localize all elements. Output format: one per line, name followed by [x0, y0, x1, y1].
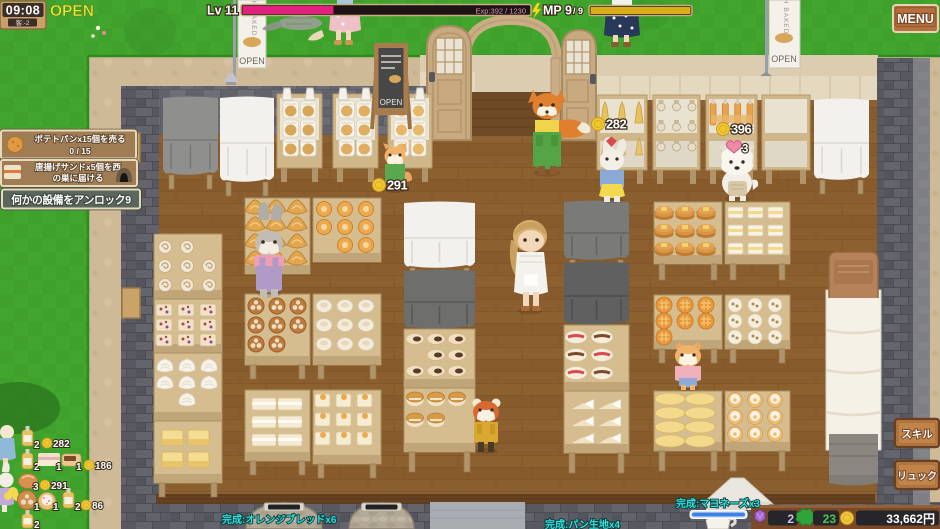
- svg-text:/ 9: / 9: [573, 6, 583, 16]
- svg-text:OPEN: OPEN: [771, 54, 797, 64]
- svg-text:291: 291: [51, 481, 68, 492]
- svg-text:186: 186: [95, 461, 112, 472]
- svg-text:23: 23: [823, 512, 837, 526]
- svg-text:3: 3: [33, 482, 39, 493]
- svg-text:唐揚げサンドx5個を西: 唐揚げサンドx5個を西: [35, 162, 121, 172]
- svg-text:1: 1: [53, 502, 59, 513]
- svg-text:完成:パン生地x4: 完成:パン生地x4: [545, 518, 620, 529]
- svg-text:33,662円: 33,662円: [886, 512, 935, 526]
- svg-text:MENU: MENU: [897, 12, 934, 26]
- svg-text:完成:オレンジブレッドx6: 完成:オレンジブレッドx6: [222, 513, 337, 526]
- svg-text:ポテトパンx15個を売る: ポテトパンx15個を売る: [34, 134, 125, 144]
- svg-text:3: 3: [742, 144, 748, 156]
- svg-text:282: 282: [53, 439, 70, 450]
- svg-text:MP 9: MP 9: [543, 4, 572, 18]
- svg-text:0 / 15: 0 / 15: [69, 146, 91, 156]
- svg-text:Lv 11: Lv 11: [207, 4, 238, 18]
- svg-text:396: 396: [731, 122, 751, 137]
- svg-text:スキル: スキル: [901, 429, 933, 441]
- svg-text:2: 2: [75, 502, 81, 513]
- svg-text:OPEN: OPEN: [380, 98, 403, 107]
- svg-text:客:-2: 客:-2: [15, 18, 29, 27]
- svg-text:FRESH BAKED: FRESH BAKED: [782, 0, 789, 34]
- svg-text:09:08: 09:08: [6, 4, 40, 18]
- svg-text:2: 2: [787, 512, 794, 526]
- svg-text:1: 1: [76, 462, 82, 473]
- svg-text:完成:マヨネーズx3: 完成:マヨネーズx3: [676, 497, 760, 510]
- svg-text:2: 2: [34, 520, 40, 529]
- svg-text:282: 282: [606, 117, 626, 132]
- svg-text:Exp:392 / 1230: Exp:392 / 1230: [476, 7, 526, 16]
- svg-text:リュック: リュック: [897, 471, 937, 483]
- svg-text:2: 2: [34, 440, 40, 451]
- svg-text:の巣に届ける: の巣に届ける: [52, 173, 103, 183]
- svg-text:OPEN: OPEN: [50, 3, 94, 20]
- svg-text:1: 1: [56, 462, 62, 473]
- svg-text:OPEN: OPEN: [239, 56, 265, 66]
- svg-text:291: 291: [387, 178, 407, 193]
- svg-text:何かの設備をアンロック9: 何かの設備をアンロック9: [11, 193, 131, 207]
- svg-text:86: 86: [92, 501, 104, 512]
